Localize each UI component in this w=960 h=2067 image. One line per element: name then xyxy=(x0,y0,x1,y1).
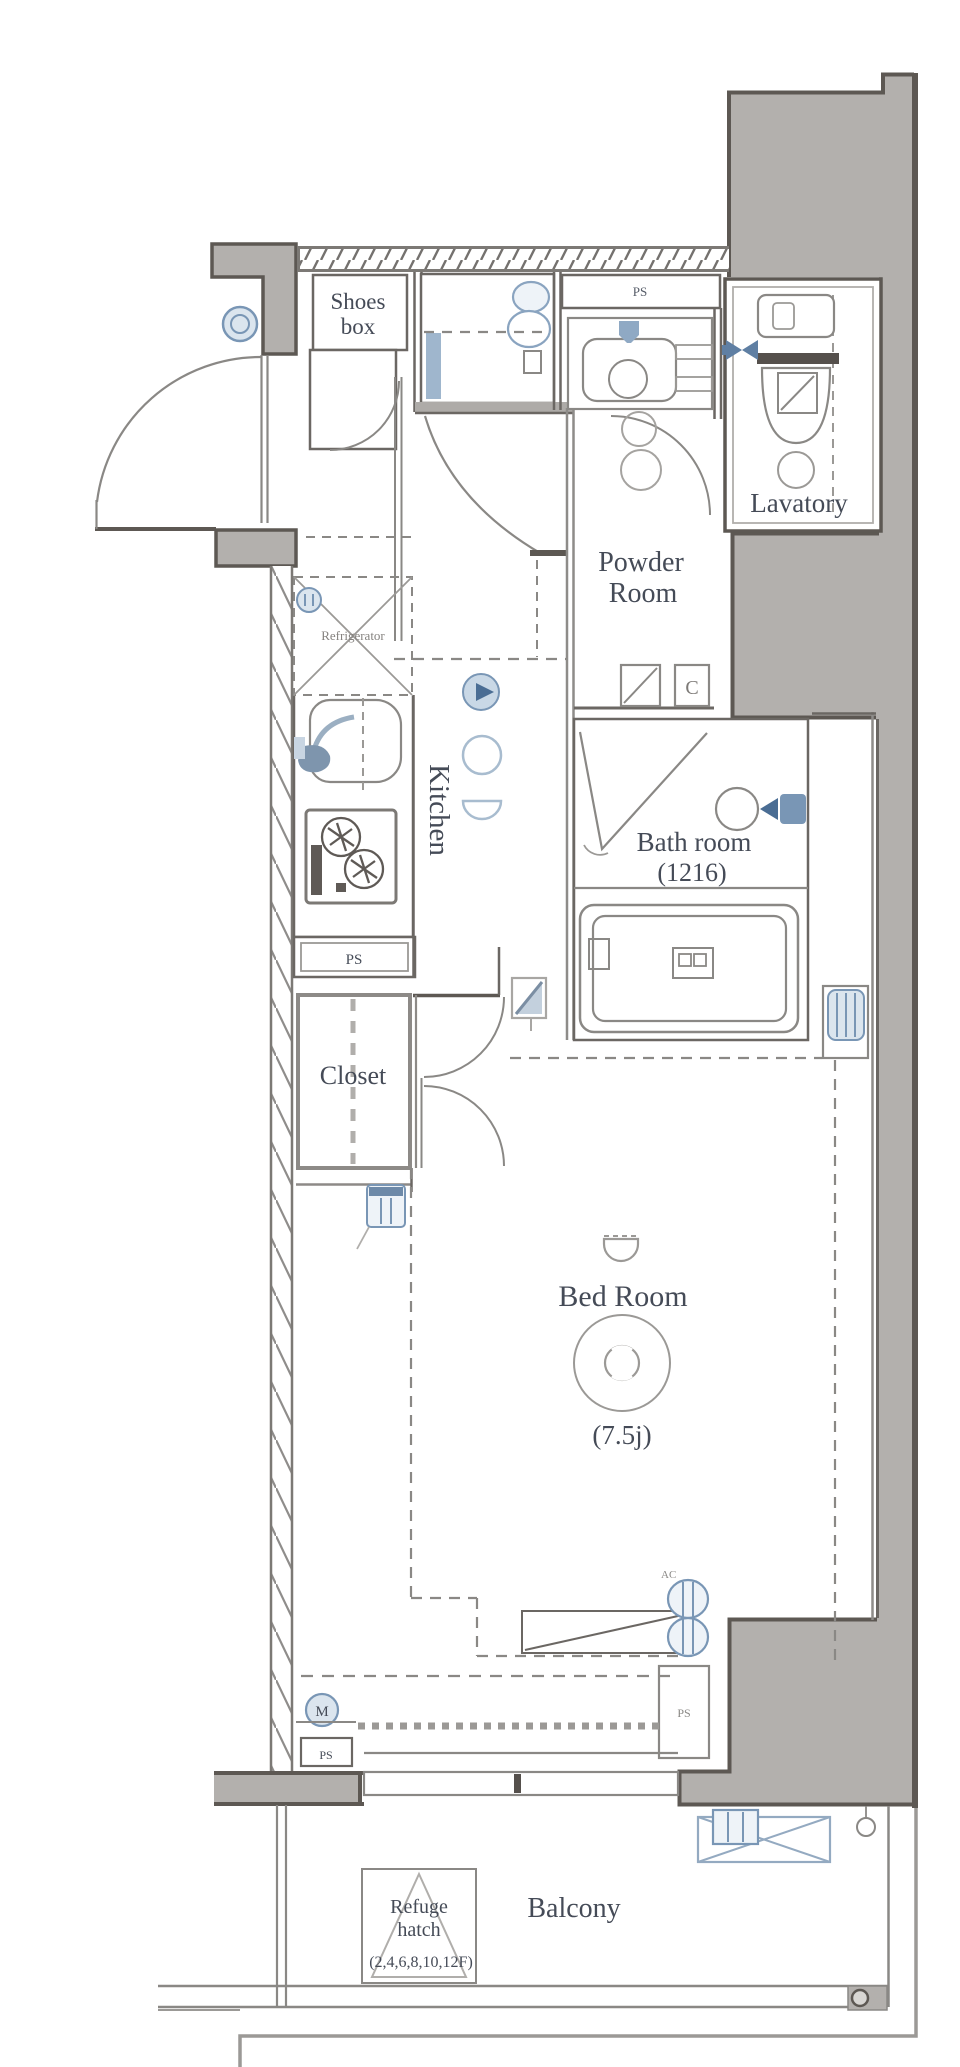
svg-text:PS: PS xyxy=(633,284,647,299)
svg-text:Bath room: Bath room xyxy=(637,827,752,857)
svg-text:hatch: hatch xyxy=(397,1919,440,1941)
svg-text:Closet: Closet xyxy=(320,1061,387,1090)
svg-text:Room: Room xyxy=(609,578,678,609)
svg-text:AC: AC xyxy=(661,1569,676,1581)
svg-text:Refrigerator: Refrigerator xyxy=(321,628,385,643)
svg-text:Powder: Powder xyxy=(598,547,684,578)
svg-text:Lavatory: Lavatory xyxy=(750,488,848,518)
svg-text:Kitchen: Kitchen xyxy=(423,764,455,856)
svg-text:PS: PS xyxy=(677,1706,690,1720)
svg-text:Refuge: Refuge xyxy=(390,1896,448,1918)
svg-text:(7.5j): (7.5j) xyxy=(592,1420,651,1450)
svg-text:box: box xyxy=(341,314,376,339)
svg-text:Shoes: Shoes xyxy=(331,289,386,314)
svg-text:PS: PS xyxy=(346,952,363,968)
svg-text:(1216): (1216) xyxy=(657,858,726,887)
svg-text:Balcony: Balcony xyxy=(527,1893,620,1924)
svg-text:(2,4,6,8,10,12F): (2,4,6,8,10,12F) xyxy=(369,1954,473,1971)
svg-text:M: M xyxy=(315,1704,328,1720)
svg-text:Bed Room: Bed Room xyxy=(558,1280,687,1313)
svg-text:PS: PS xyxy=(319,1748,332,1762)
svg-text:C: C xyxy=(685,677,698,699)
